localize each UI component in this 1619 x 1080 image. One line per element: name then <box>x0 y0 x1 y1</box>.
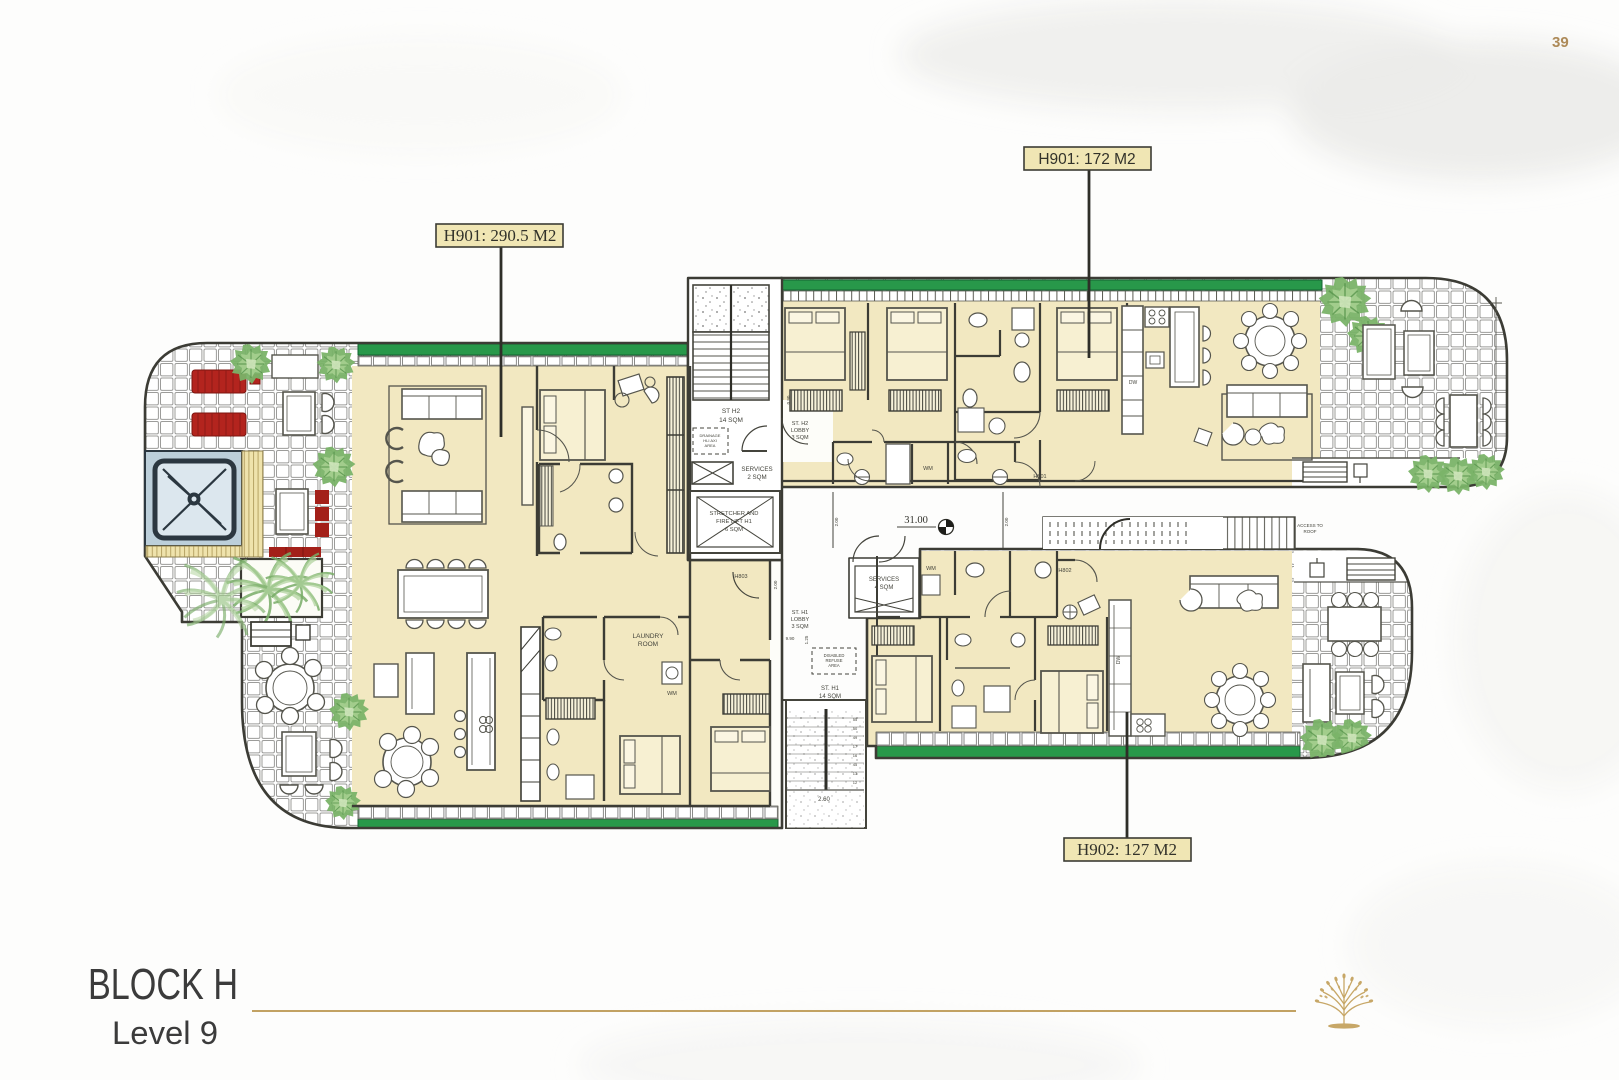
svg-text:H901: 290.5 M2: H901: 290.5 M2 <box>444 226 557 245</box>
svg-text:2.60: 2.60 <box>818 797 830 803</box>
svg-text:ACCESS TO: ACCESS TO <box>1297 523 1323 528</box>
svg-text:49: 49 <box>853 735 858 740</box>
svg-text:H803: H803 <box>734 574 747 580</box>
svg-text:9.90: 9.90 <box>786 636 795 641</box>
svg-text:50: 50 <box>853 726 858 731</box>
svg-text:1.25: 1.25 <box>804 635 809 644</box>
svg-text:12: 12 <box>853 780 858 785</box>
svg-text:ST. H1: ST. H1 <box>821 686 840 692</box>
svg-text:WM: WM <box>667 691 677 697</box>
svg-text:LOBBY: LOBBY <box>791 428 810 434</box>
svg-text:4 SQM: 4 SQM <box>875 585 894 591</box>
svg-text:39: 39 <box>1552 34 1569 51</box>
svg-text:55: 55 <box>853 717 858 722</box>
svg-text:ROOM: ROOM <box>638 641 658 648</box>
svg-text:SERVICES: SERVICES <box>741 466 772 473</box>
svg-text:2.00: 2.00 <box>1004 517 1009 526</box>
svg-text:STRETCHER AND: STRETCHER AND <box>710 511 759 517</box>
svg-text:AREA: AREA <box>828 663 840 668</box>
svg-text:FIRE LIFT H1: FIRE LIFT H1 <box>716 519 752 525</box>
svg-text:3 SQM: 3 SQM <box>791 624 809 630</box>
svg-text:17: 17 <box>853 744 858 749</box>
svg-text:H902: 127 M2: H902: 127 M2 <box>1077 840 1177 859</box>
svg-text:3 SQM: 3 SQM <box>791 435 809 441</box>
svg-text:ST. H1: ST. H1 <box>792 610 809 616</box>
svg-text:H901: 172 M2: H901: 172 M2 <box>1038 151 1135 168</box>
svg-text:2.00: 2.00 <box>773 580 778 589</box>
svg-text:ST H2: ST H2 <box>722 408 741 415</box>
svg-text:Level 9: Level 9 <box>112 1015 218 1051</box>
svg-text:ROOF: ROOF <box>1304 529 1317 534</box>
svg-text:2.00: 2.00 <box>834 517 839 526</box>
svg-text:13: 13 <box>853 771 858 776</box>
svg-text:LAUNDRY: LAUNDRY <box>633 633 665 640</box>
svg-text:WM: WM <box>923 466 933 472</box>
svg-text:2 SQM: 2 SQM <box>747 474 766 481</box>
svg-text:14 SQM: 14 SQM <box>719 417 743 424</box>
svg-text:BLOCK H: BLOCK H <box>88 960 238 1009</box>
svg-text:DW: DW <box>1116 656 1122 665</box>
svg-text:AREA: AREA <box>705 443 716 448</box>
svg-text:H802: H802 <box>1058 568 1071 574</box>
svg-text:31.00: 31.00 <box>904 515 928 526</box>
svg-text:H801: H801 <box>1033 474 1046 480</box>
svg-text:WM: WM <box>926 566 936 572</box>
svg-text:DW: DW <box>1129 380 1138 386</box>
svg-text:SERVICES: SERVICES <box>869 577 899 583</box>
svg-text:6 SQM: 6 SQM <box>725 527 743 533</box>
svg-text:16: 16 <box>853 753 858 758</box>
svg-text:ST. H2: ST. H2 <box>792 421 809 427</box>
svg-text:45: 45 <box>853 762 858 767</box>
svg-text:LOBBY: LOBBY <box>791 617 810 623</box>
